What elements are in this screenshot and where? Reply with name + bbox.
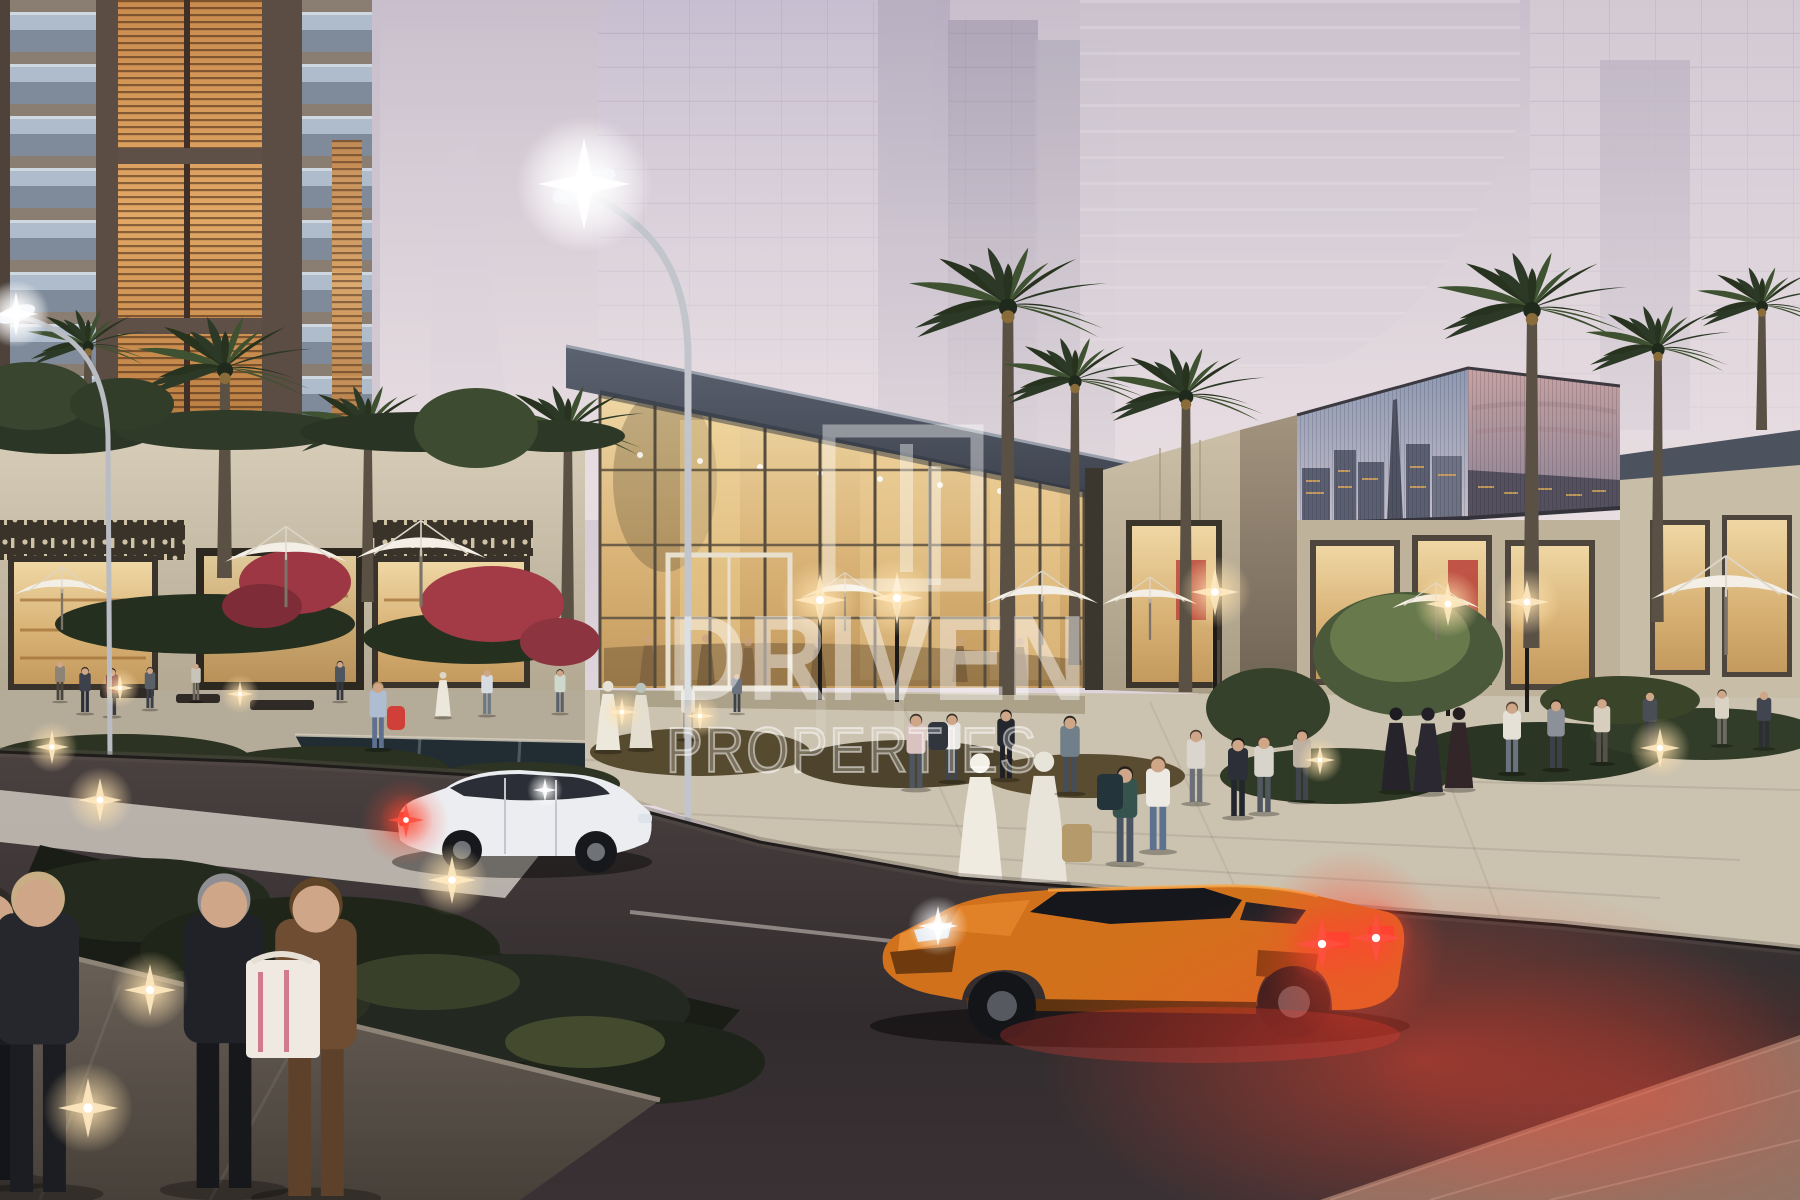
bag [246, 960, 320, 1058]
shrub [505, 1016, 665, 1068]
legs [1231, 776, 1237, 816]
torso [1715, 696, 1729, 718]
shrub [222, 584, 302, 628]
torso [1594, 706, 1611, 732]
torso [335, 666, 345, 682]
light-glint [908, 896, 968, 956]
legs [151, 687, 154, 708]
date-cluster [1070, 384, 1080, 394]
rendering-canvas: DRIVEN PROPERTIES [0, 0, 1800, 1200]
head [14, 880, 61, 927]
legs [556, 690, 559, 712]
light-glint [1179, 556, 1251, 628]
watermark-brand-text: DRIVEN [667, 590, 1087, 726]
head [484, 670, 491, 677]
torso [1060, 726, 1080, 757]
legs [1265, 773, 1270, 812]
head [82, 668, 89, 675]
legs [1759, 718, 1763, 747]
light-glint [67, 767, 133, 833]
ornamental-frieze [368, 520, 533, 556]
ornamental-frieze [0, 520, 185, 560]
legs [1765, 718, 1769, 747]
legs [1717, 716, 1721, 744]
light-glint [515, 115, 653, 253]
legs [10, 1028, 33, 1192]
light-glint [1630, 718, 1690, 778]
legs [379, 714, 384, 748]
torso [0, 913, 79, 1044]
legs [1126, 813, 1133, 862]
torso [1228, 748, 1248, 780]
date-cluster [1181, 399, 1192, 410]
head [337, 662, 343, 668]
light-glint [601, 691, 643, 733]
light-glint [416, 844, 488, 916]
torso [1254, 746, 1274, 777]
head [1760, 692, 1768, 700]
legs [1557, 733, 1562, 768]
legs [561, 690, 564, 712]
light-glint [379, 793, 433, 847]
light-glint [1415, 571, 1481, 637]
shrub [1206, 668, 1330, 748]
light-glint [101, 669, 140, 708]
legs [86, 689, 89, 712]
legs [483, 691, 486, 714]
legs [61, 680, 64, 700]
date-cluster [1002, 310, 1015, 323]
date-cluster [1653, 352, 1663, 362]
torso [191, 668, 201, 683]
legs [146, 687, 149, 708]
legs [1239, 776, 1245, 816]
legs [1063, 753, 1068, 792]
legs [197, 1027, 220, 1188]
date-cluster [1758, 308, 1767, 317]
head [193, 664, 198, 669]
legs [1513, 736, 1518, 772]
head [1551, 701, 1561, 711]
architectural-rendering: DRIVEN PROPERTIES [0, 0, 1800, 1200]
shrub [414, 388, 538, 468]
torso [1503, 711, 1521, 740]
light-glint [527, 772, 563, 808]
legs [1603, 729, 1608, 762]
torso [79, 673, 91, 691]
legs [1117, 813, 1124, 862]
legs [1596, 729, 1601, 762]
legs [1071, 753, 1076, 792]
head [1718, 691, 1726, 699]
head [1421, 708, 1434, 721]
shrub [340, 954, 520, 1010]
bag [1062, 824, 1092, 862]
legs [57, 680, 60, 700]
head [440, 672, 447, 679]
legs [197, 681, 200, 700]
shrub [70, 378, 174, 430]
light-glint [27, 722, 78, 773]
head [636, 683, 646, 693]
head [201, 881, 247, 927]
legs [337, 680, 340, 700]
torso [1757, 698, 1772, 721]
light-glint [1494, 569, 1560, 635]
torso [370, 690, 387, 717]
head [1297, 731, 1307, 741]
legs [1723, 716, 1727, 744]
bag [1097, 774, 1123, 810]
torso [1547, 709, 1565, 737]
light-glint [1298, 738, 1343, 783]
date-cluster [1526, 313, 1539, 326]
head [1390, 707, 1403, 720]
atrium-corner-column [1085, 468, 1103, 690]
head [1597, 699, 1607, 709]
head [1151, 759, 1165, 773]
legs [1150, 802, 1157, 850]
legs [1159, 802, 1166, 850]
head [1258, 738, 1269, 749]
legs [372, 714, 377, 748]
torso [1187, 739, 1206, 769]
legs [1257, 773, 1262, 812]
light-glint [221, 675, 260, 714]
legs [1506, 736, 1511, 772]
legs [1190, 765, 1195, 802]
date-cluster [219, 373, 231, 385]
head [1507, 703, 1517, 713]
head [1453, 707, 1466, 720]
head [603, 681, 614, 692]
legs [341, 680, 344, 700]
torso [481, 675, 493, 693]
head [373, 683, 383, 693]
torso [145, 672, 156, 689]
legs [193, 681, 196, 700]
headlight [638, 814, 652, 823]
head [293, 886, 340, 933]
head [147, 668, 153, 674]
bag [387, 706, 405, 730]
light-glint [111, 951, 189, 1029]
legs [1197, 765, 1202, 802]
legs [488, 691, 491, 714]
light-glint [43, 1063, 133, 1153]
head [557, 670, 563, 676]
head [1646, 693, 1654, 701]
shrub [520, 618, 600, 666]
torso [555, 675, 566, 693]
torso [55, 666, 65, 682]
legs [321, 1033, 344, 1196]
far-right-pavilion [1620, 430, 1800, 700]
head [1232, 740, 1244, 752]
led-box-side-wall [1240, 415, 1297, 695]
head [57, 662, 63, 668]
light-glint [1337, 899, 1415, 977]
head [1191, 732, 1202, 743]
legs [81, 689, 84, 712]
watermark-sub-text: PROPERTIES [666, 714, 1038, 786]
legs [1550, 733, 1555, 768]
torso [1146, 768, 1170, 806]
head [644, 636, 652, 644]
